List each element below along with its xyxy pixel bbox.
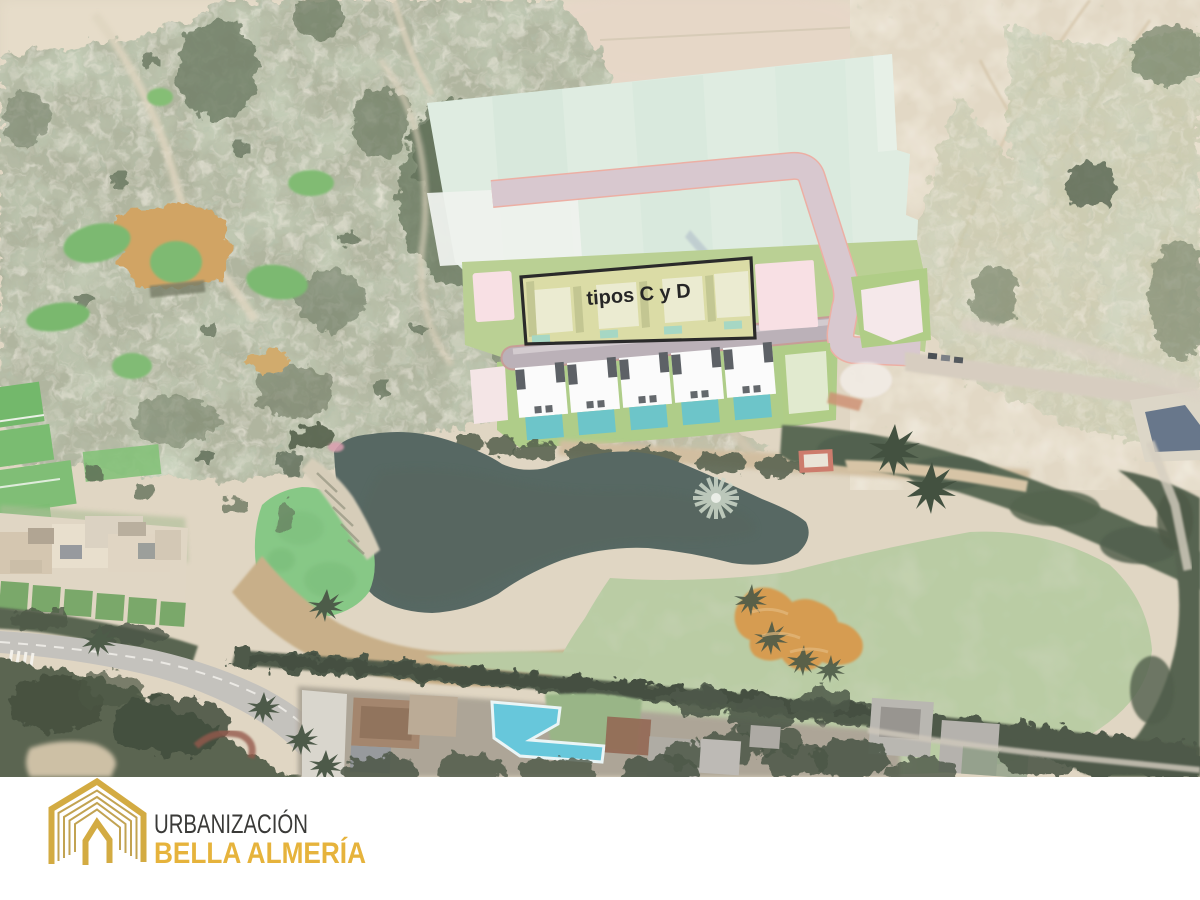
svg-text:BELLA ALMERÍA: BELLA ALMERÍA	[154, 836, 366, 870]
svg-text:URBANIZACIÓN: URBANIZACIÓN	[154, 808, 308, 839]
